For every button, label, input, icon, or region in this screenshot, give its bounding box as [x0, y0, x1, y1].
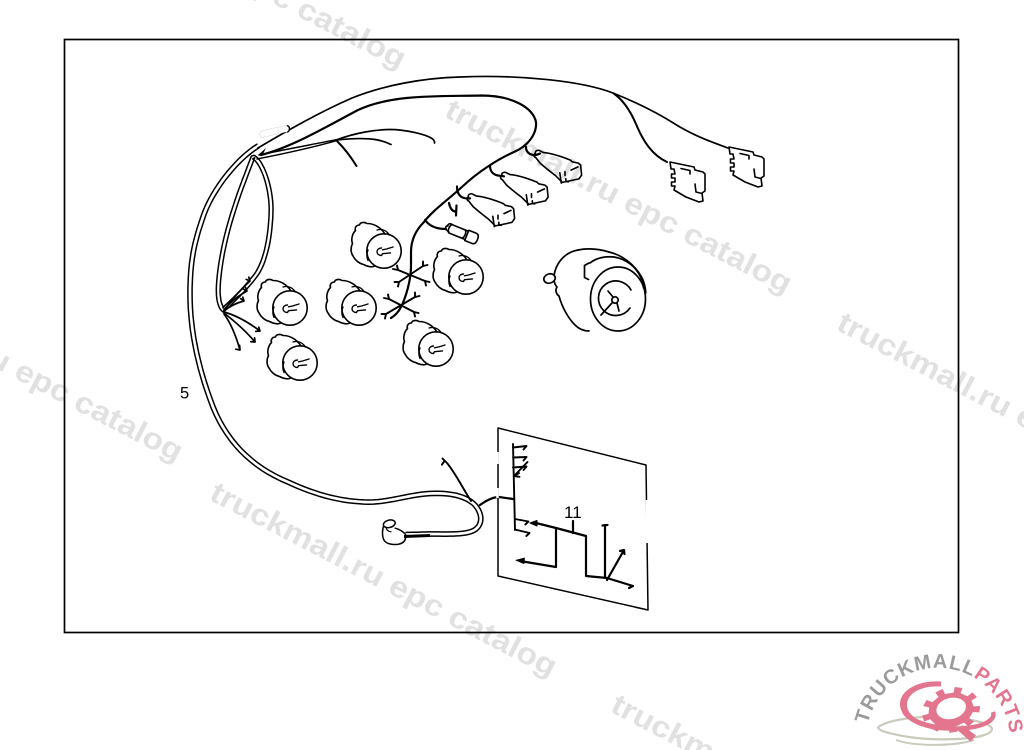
- svg-text:5: 5: [180, 385, 189, 403]
- svg-text:truckmall.ru epc catalog: truckmall.ru epc catalog: [832, 306, 1024, 514]
- svg-text:truckmall.ru epc catalog: truckmall.ru epc catalog: [440, 93, 798, 301]
- svg-text:truckmall.ru epc catalog: truckmall.ru epc catalog: [54, 0, 412, 75]
- svg-text:truckmall.ru epc catalog: truckmall.ru epc catalog: [205, 476, 563, 684]
- svg-text:11: 11: [564, 503, 582, 522]
- svg-text:truckmall.ru epc catalog: truckmall.ru epc catalog: [0, 261, 188, 469]
